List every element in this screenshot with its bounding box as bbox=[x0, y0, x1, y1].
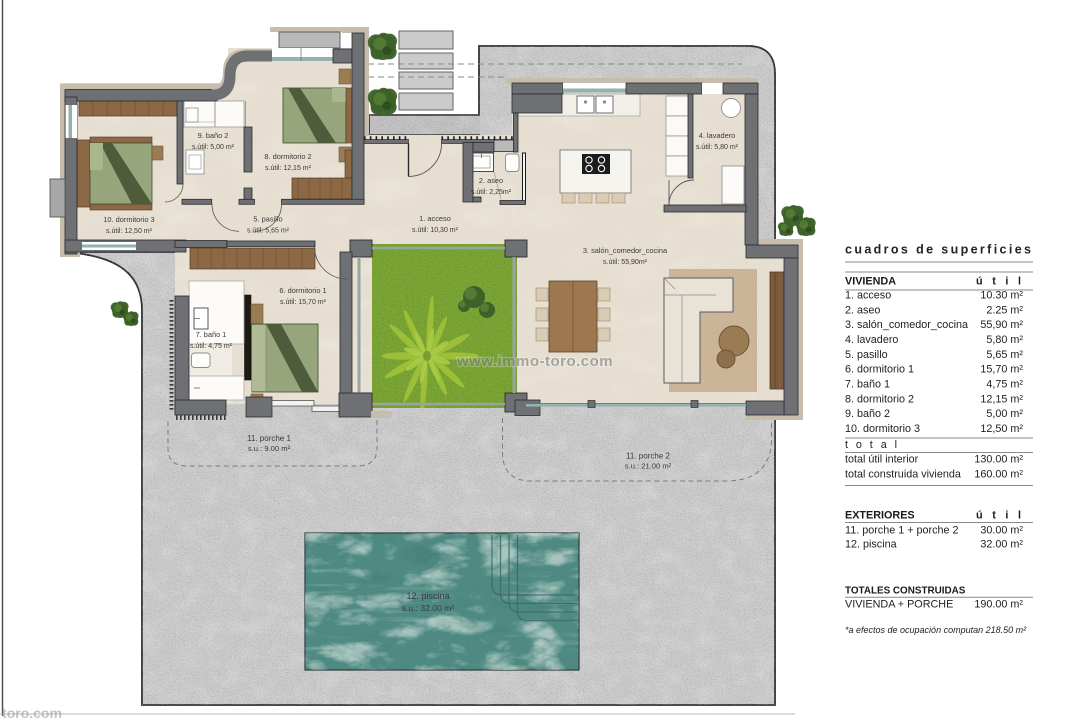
svg-text:12. piscina: 12. piscina bbox=[845, 539, 897, 551]
svg-text:total construida vivienda: total construida vivienda bbox=[845, 469, 961, 481]
svg-text:*a efectos de ocupación comput: *a efectos de ocupación computan 218.50 … bbox=[845, 625, 1027, 635]
svg-text:1. acceso: 1. acceso bbox=[845, 289, 891, 301]
svg-text:10. dormitorio 3: 10. dormitorio 3 bbox=[103, 215, 154, 224]
svg-text:VIVIENDA: VIVIENDA bbox=[845, 276, 896, 288]
svg-text:www.immo-toro.com: www.immo-toro.com bbox=[456, 353, 613, 370]
svg-text:8. dormitorio 2: 8. dormitorio 2 bbox=[264, 152, 311, 161]
svg-text:10.30 m²: 10.30 m² bbox=[980, 289, 1023, 301]
svg-text:5. pasillo: 5. pasillo bbox=[845, 349, 888, 361]
svg-text:11. porche 1 + porche 2: 11. porche 1 + porche 2 bbox=[845, 524, 959, 536]
svg-text:5. pasillo: 5. pasillo bbox=[253, 215, 282, 224]
svg-text:12,15 m²: 12,15 m² bbox=[980, 393, 1023, 405]
svg-text:s.u.: 9.00 m²: s.u.: 9.00 m² bbox=[248, 444, 291, 453]
svg-text:cuadros de superficies: cuadros de superficies bbox=[845, 243, 1031, 257]
svg-text:s.útil: 5,00 m²: s.útil: 5,00 m² bbox=[192, 144, 235, 151]
svg-text:10. dormitorio 3: 10. dormitorio 3 bbox=[845, 423, 920, 435]
svg-text:EXTERIORES: EXTERIORES bbox=[845, 509, 915, 521]
svg-text:s.útil: 55,90m²: s.útil: 55,90m² bbox=[603, 259, 648, 266]
svg-text:2.25 m²: 2.25 m² bbox=[986, 304, 1023, 316]
svg-text:130.00 m²: 130.00 m² bbox=[974, 454, 1023, 466]
svg-text:2. aseo: 2. aseo bbox=[845, 304, 880, 316]
svg-text:TOTALES CONSTRUIDAS: TOTALES CONSTRUIDAS bbox=[845, 585, 966, 596]
svg-text:8. dormitorio 2: 8. dormitorio 2 bbox=[845, 393, 914, 405]
svg-text:3. salón_comedor_cocina: 3. salón_comedor_cocina bbox=[845, 319, 968, 331]
svg-text:s.útil: 4,75 m²: s.útil: 4,75 m² bbox=[190, 343, 233, 350]
svg-text:s.útil: 2,25m²: s.útil: 2,25m² bbox=[471, 189, 512, 196]
svg-text:5,65 m²: 5,65 m² bbox=[986, 349, 1023, 361]
svg-text:7. baño 1: 7. baño 1 bbox=[196, 330, 227, 339]
svg-text:5,00 m²: 5,00 m² bbox=[986, 408, 1023, 420]
svg-text:4,75 m²: 4,75 m² bbox=[986, 379, 1023, 391]
svg-text:s.útil: 12,15 m²: s.útil: 12,15 m² bbox=[265, 165, 312, 172]
svg-text:9. baño 2: 9. baño 2 bbox=[198, 131, 229, 140]
svg-text:3. salón_comedor_cocina: 3. salón_comedor_cocina bbox=[583, 246, 668, 255]
svg-text:15,70 m²: 15,70 m² bbox=[980, 364, 1023, 376]
svg-text:32.00 m²: 32.00 m² bbox=[980, 539, 1023, 551]
svg-text:4. lavadero: 4. lavadero bbox=[699, 131, 736, 140]
svg-text:6. dormitorio 1: 6. dormitorio 1 bbox=[845, 364, 914, 376]
svg-text:s.útil: 5,65 m²: s.útil: 5,65 m² bbox=[247, 228, 290, 235]
svg-text:12. piscina: 12. piscina bbox=[406, 591, 449, 601]
svg-text:2. aseo: 2. aseo bbox=[479, 176, 503, 185]
svg-text:7. baño 1: 7. baño 1 bbox=[845, 379, 890, 391]
svg-text:190.00 m²: 190.00 m² bbox=[974, 598, 1023, 610]
svg-text:5,80 m²: 5,80 m² bbox=[986, 334, 1023, 346]
svg-text:55,90 m²: 55,90 m² bbox=[980, 319, 1023, 331]
svg-text:4. lavadero: 4. lavadero bbox=[845, 334, 898, 346]
svg-text:s.u.: 21.00 m²: s.u.: 21.00 m² bbox=[625, 462, 672, 471]
svg-text:VIVIENDA + PORCHE: VIVIENDA + PORCHE bbox=[845, 598, 953, 610]
svg-text:160.00 m²: 160.00 m² bbox=[974, 469, 1023, 481]
svg-text:12,50 m²: 12,50 m² bbox=[980, 423, 1023, 435]
svg-text:toro.com: toro.com bbox=[2, 705, 62, 720]
svg-text:11. porche 1: 11. porche 1 bbox=[247, 434, 291, 443]
svg-text:1. acceso: 1. acceso bbox=[419, 214, 451, 223]
svg-text:total útil interior: total útil interior bbox=[845, 454, 919, 466]
svg-text:s.útil: 12,50 m²: s.útil: 12,50 m² bbox=[106, 228, 153, 235]
svg-text:s.útil: 10,30 m²: s.útil: 10,30 m² bbox=[412, 227, 459, 234]
svg-text:s.útil: 15,70 m²: s.útil: 15,70 m² bbox=[280, 299, 327, 306]
svg-text:11. porche 2: 11. porche 2 bbox=[626, 452, 670, 461]
svg-text:30.00 m²: 30.00 m² bbox=[980, 524, 1023, 536]
svg-text:9. baño 2: 9. baño 2 bbox=[845, 408, 890, 420]
svg-text:s.u.: 32.00 m²: s.u.: 32.00 m² bbox=[402, 603, 455, 613]
svg-text:6. dormitorio 1: 6. dormitorio 1 bbox=[279, 286, 326, 295]
svg-text:s.útil: 5,80 m²: s.útil: 5,80 m² bbox=[696, 144, 739, 151]
